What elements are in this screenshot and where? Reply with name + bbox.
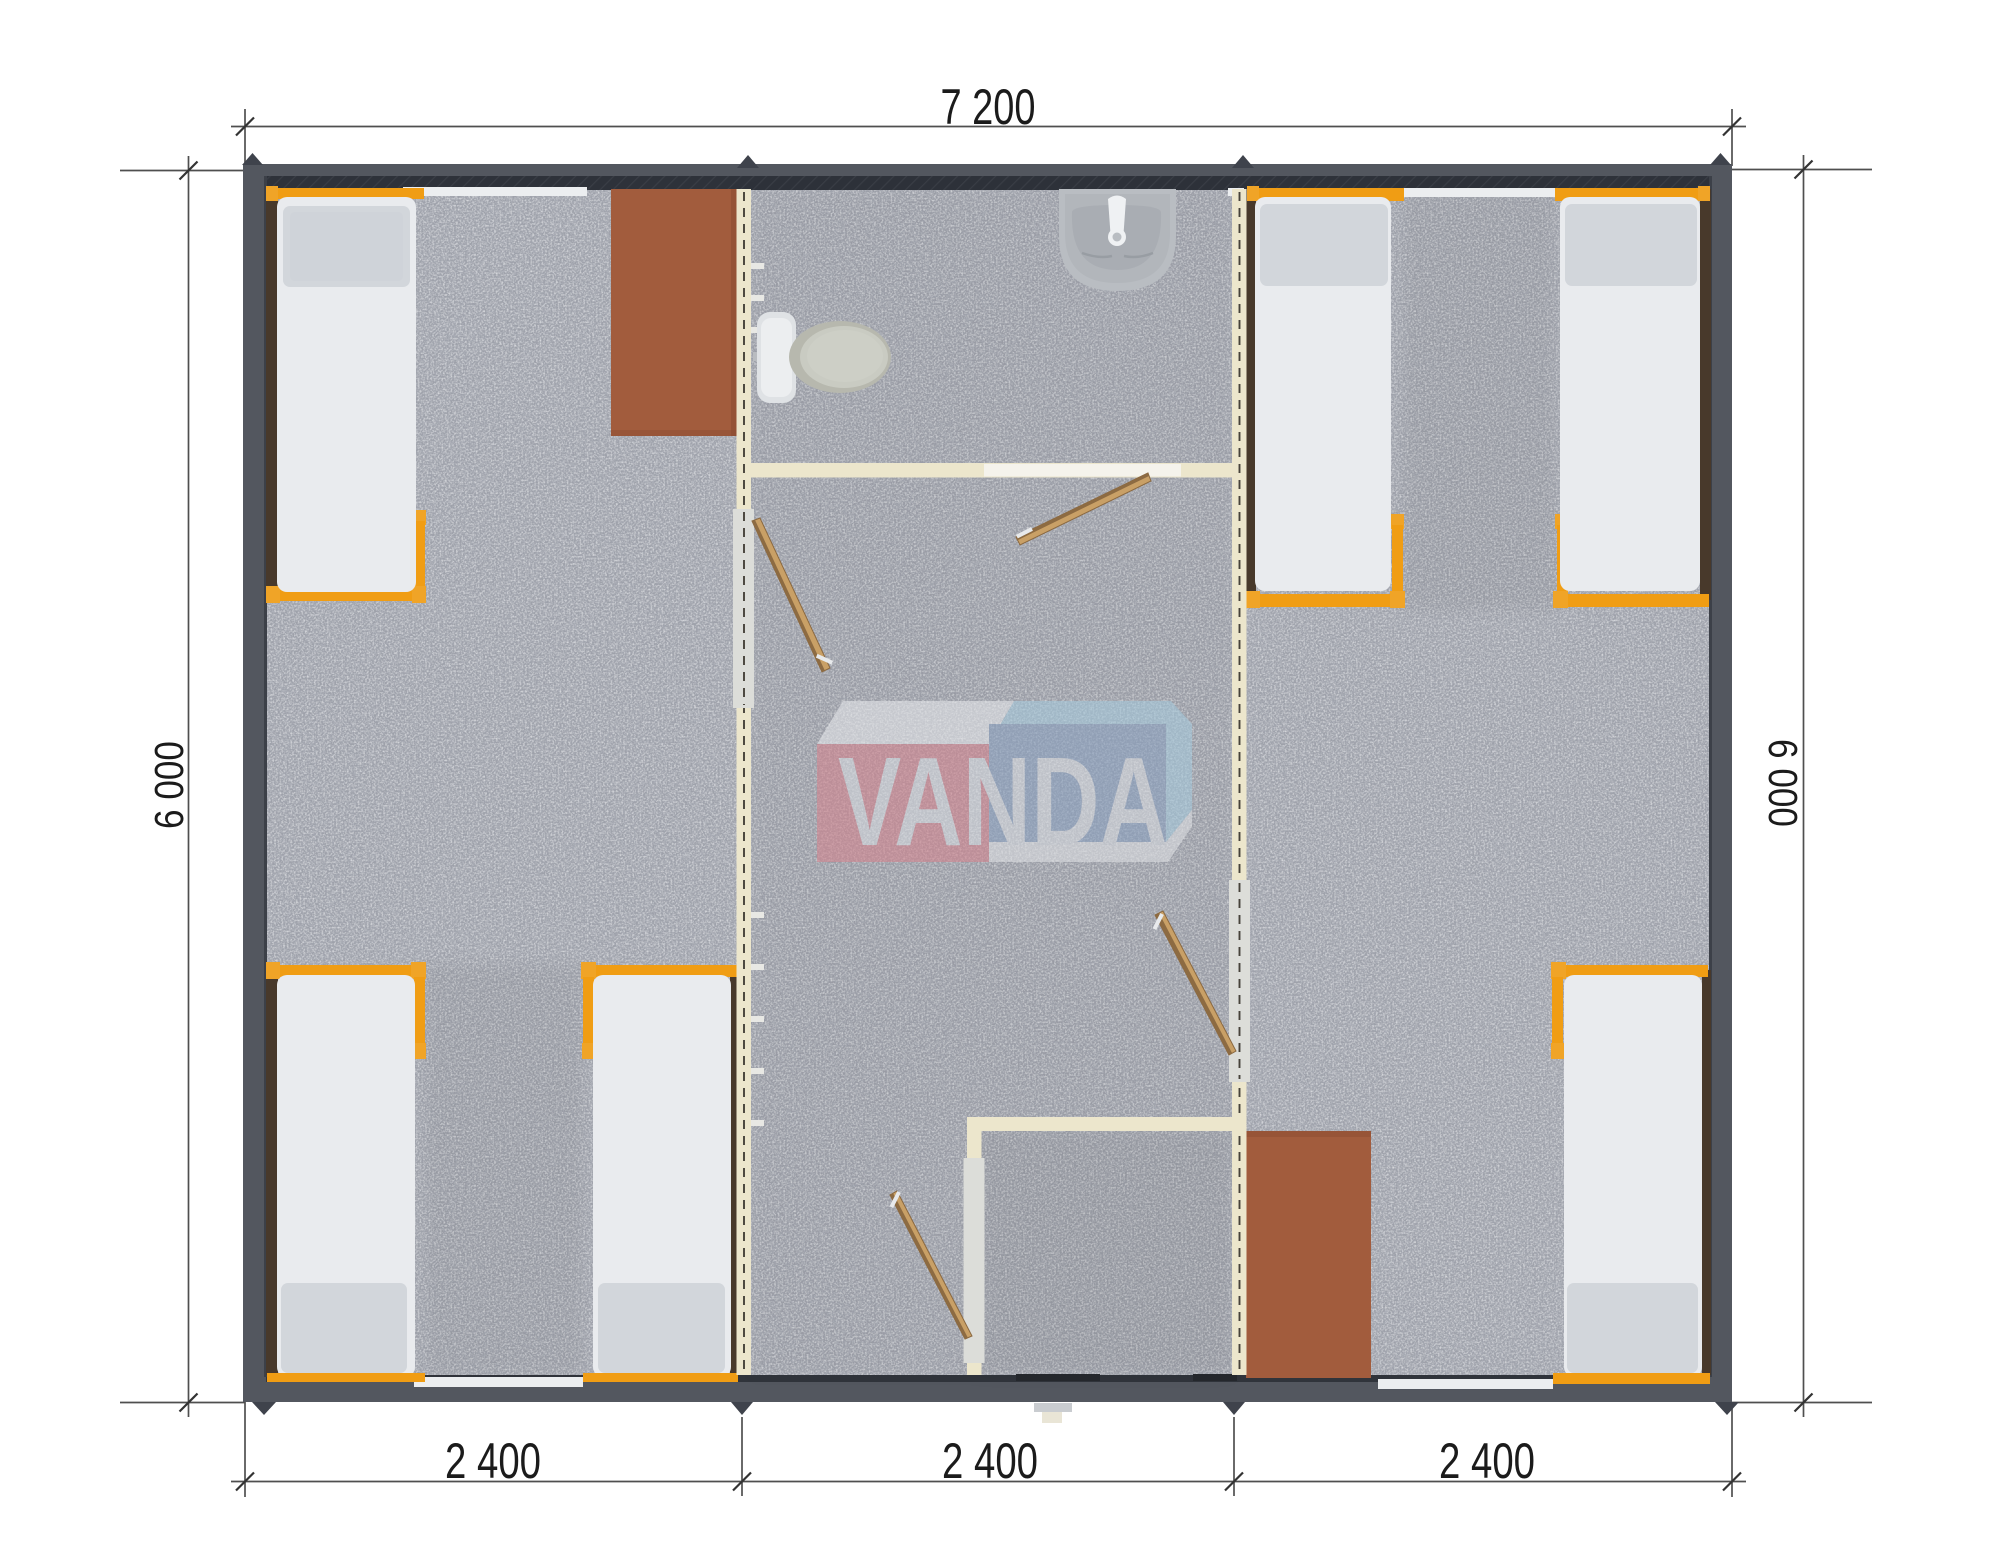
svg-text:6 000: 6 000 <box>1760 739 1806 827</box>
svg-text:7 200: 7 200 <box>941 79 1036 135</box>
svg-text:2 400: 2 400 <box>942 1433 1038 1489</box>
svg-text:VANDA: VANDA <box>838 731 1168 872</box>
svg-text:2 400: 2 400 <box>1439 1433 1535 1489</box>
svg-text:6 000: 6 000 <box>146 741 192 829</box>
svg-text:2 400: 2 400 <box>445 1433 541 1489</box>
